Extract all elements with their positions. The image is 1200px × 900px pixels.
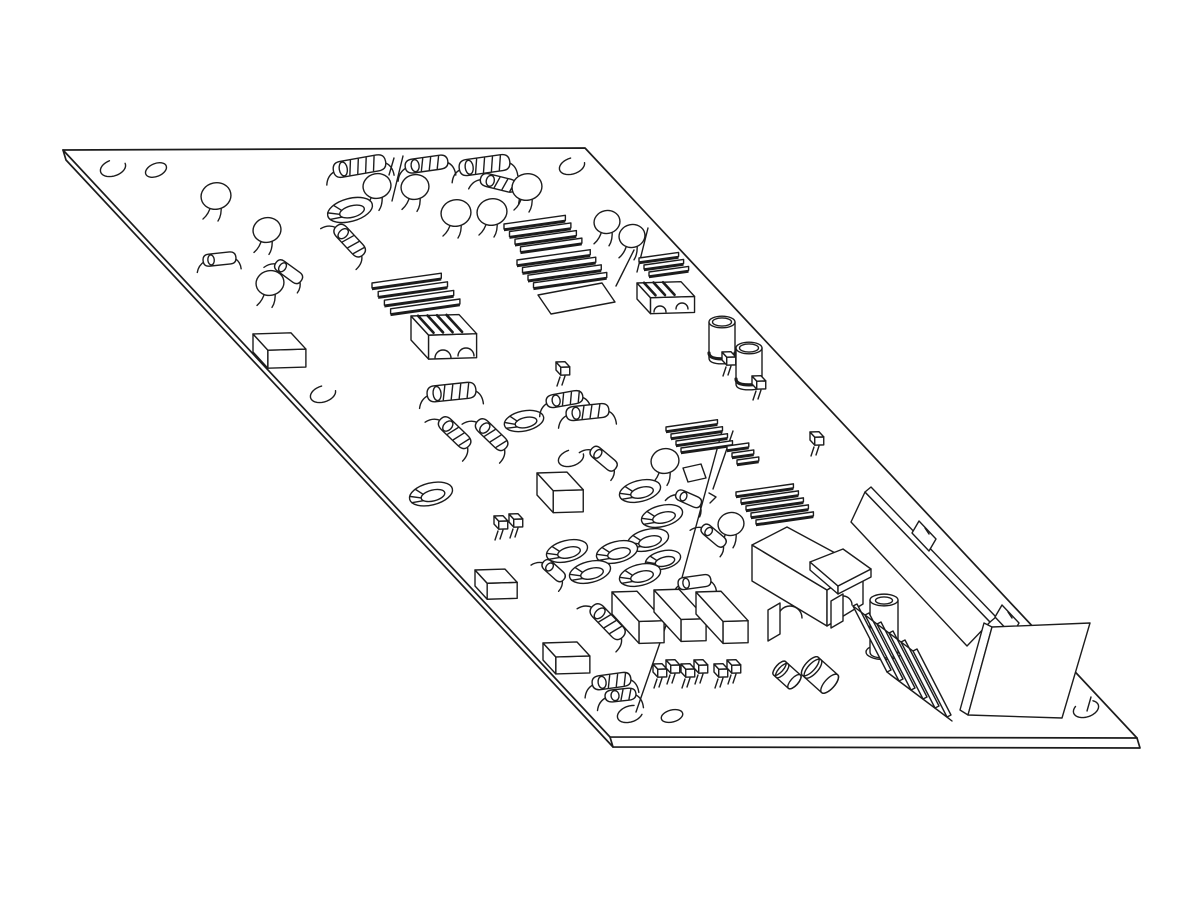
pcb-isometric-drawing bbox=[0, 0, 1200, 900]
technical-illustration bbox=[0, 0, 1200, 900]
